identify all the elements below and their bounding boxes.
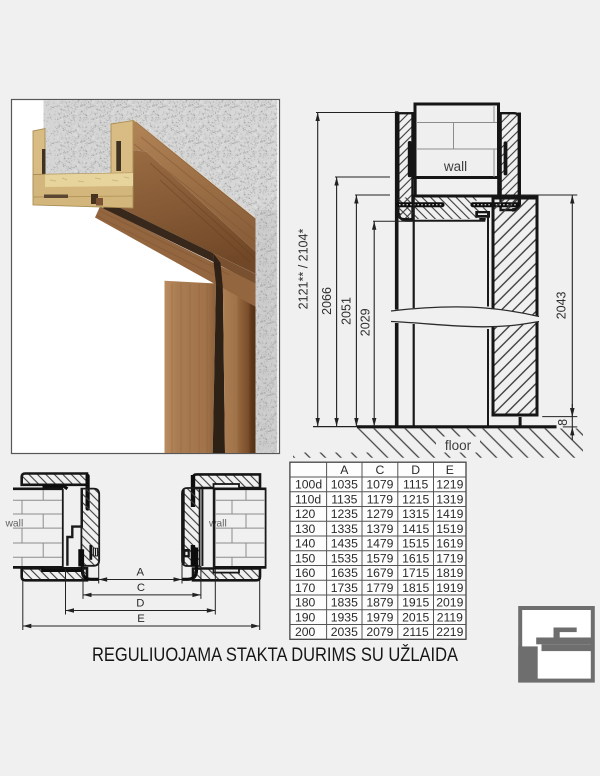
svg-text:C: C	[375, 463, 384, 477]
svg-text:100d: 100d	[295, 478, 322, 492]
svg-text:1815: 1815	[402, 581, 429, 595]
svg-text:150: 150	[295, 552, 316, 566]
svg-text:2043: 2043	[555, 291, 569, 319]
svg-text:wall: wall	[208, 519, 227, 530]
svg-text:110d: 110d	[295, 493, 321, 507]
svg-text:1819: 1819	[436, 566, 463, 580]
svg-text:120: 120	[295, 507, 316, 521]
svg-text:1535: 1535	[331, 552, 358, 566]
svg-text:1579: 1579	[366, 552, 393, 566]
svg-text:2121** / 2104*: 2121** / 2104*	[297, 229, 311, 310]
svg-text:1415: 1415	[402, 522, 429, 536]
svg-text:1315: 1315	[402, 507, 429, 521]
svg-text:1915: 1915	[402, 596, 429, 610]
svg-text:1935: 1935	[331, 611, 358, 625]
svg-text:130: 130	[295, 522, 316, 536]
svg-text:1515: 1515	[402, 537, 429, 551]
svg-text:2015: 2015	[402, 611, 429, 625]
svg-text:2051: 2051	[340, 297, 354, 325]
svg-text:1619: 1619	[436, 537, 463, 551]
svg-text:floor: floor	[445, 438, 472, 453]
svg-text:wall: wall	[5, 519, 24, 530]
svg-text:1735: 1735	[331, 581, 358, 595]
svg-text:160: 160	[295, 566, 316, 580]
svg-text:A: A	[137, 567, 145, 579]
svg-text:180: 180	[295, 596, 316, 610]
svg-text:1079: 1079	[366, 478, 393, 492]
svg-text:2019: 2019	[436, 596, 463, 610]
svg-text:REGULIUOJAMA STAKTA DURIMS SU: REGULIUOJAMA STAKTA DURIMS SU UŽLAIDA	[92, 644, 458, 666]
svg-text:2029: 2029	[359, 308, 373, 336]
svg-text:2115: 2115	[403, 625, 429, 639]
svg-text:D: D	[411, 463, 420, 477]
svg-text:1679: 1679	[366, 566, 393, 580]
svg-text:1219: 1219	[436, 478, 463, 492]
svg-text:1715: 1715	[402, 566, 429, 580]
svg-text:1835: 1835	[331, 596, 358, 610]
svg-text:D: D	[136, 598, 144, 610]
svg-text:2035: 2035	[331, 625, 358, 639]
svg-text:wall: wall	[443, 159, 467, 174]
svg-text:1519: 1519	[436, 522, 463, 536]
svg-text:1615: 1615	[402, 552, 429, 566]
svg-text:1115: 1115	[403, 478, 429, 492]
svg-text:1319: 1319	[436, 493, 463, 507]
svg-text:1235: 1235	[331, 507, 358, 521]
svg-text:200: 200	[295, 625, 316, 639]
svg-text:1035: 1035	[331, 478, 358, 492]
svg-text:8: 8	[556, 419, 570, 426]
svg-text:E: E	[446, 463, 454, 477]
svg-text:1879: 1879	[366, 596, 393, 610]
svg-text:170: 170	[295, 581, 316, 595]
svg-text:A: A	[340, 463, 349, 477]
svg-text:1479: 1479	[366, 537, 393, 551]
svg-text:1979: 1979	[366, 611, 393, 625]
svg-text:1279: 1279	[366, 507, 393, 521]
svg-text:1719: 1719	[436, 552, 463, 566]
svg-text:1779: 1779	[366, 581, 393, 595]
svg-text:1379: 1379	[366, 522, 393, 536]
svg-text:E: E	[137, 613, 145, 625]
svg-text:C: C	[137, 582, 145, 594]
svg-text:190: 190	[295, 611, 316, 625]
svg-text:1635: 1635	[331, 566, 358, 580]
svg-text:1135: 1135	[331, 493, 357, 507]
svg-text:2219: 2219	[436, 625, 463, 639]
svg-text:2066: 2066	[320, 287, 334, 315]
svg-text:1215: 1215	[402, 493, 429, 507]
svg-text:140: 140	[295, 537, 316, 551]
svg-text:1435: 1435	[331, 537, 358, 551]
svg-text:1419: 1419	[436, 507, 463, 521]
svg-text:1919: 1919	[436, 581, 463, 595]
svg-text:1335: 1335	[331, 522, 358, 536]
svg-text:2119: 2119	[437, 611, 463, 625]
svg-text:2079: 2079	[366, 625, 393, 639]
svg-text:1179: 1179	[367, 493, 393, 507]
